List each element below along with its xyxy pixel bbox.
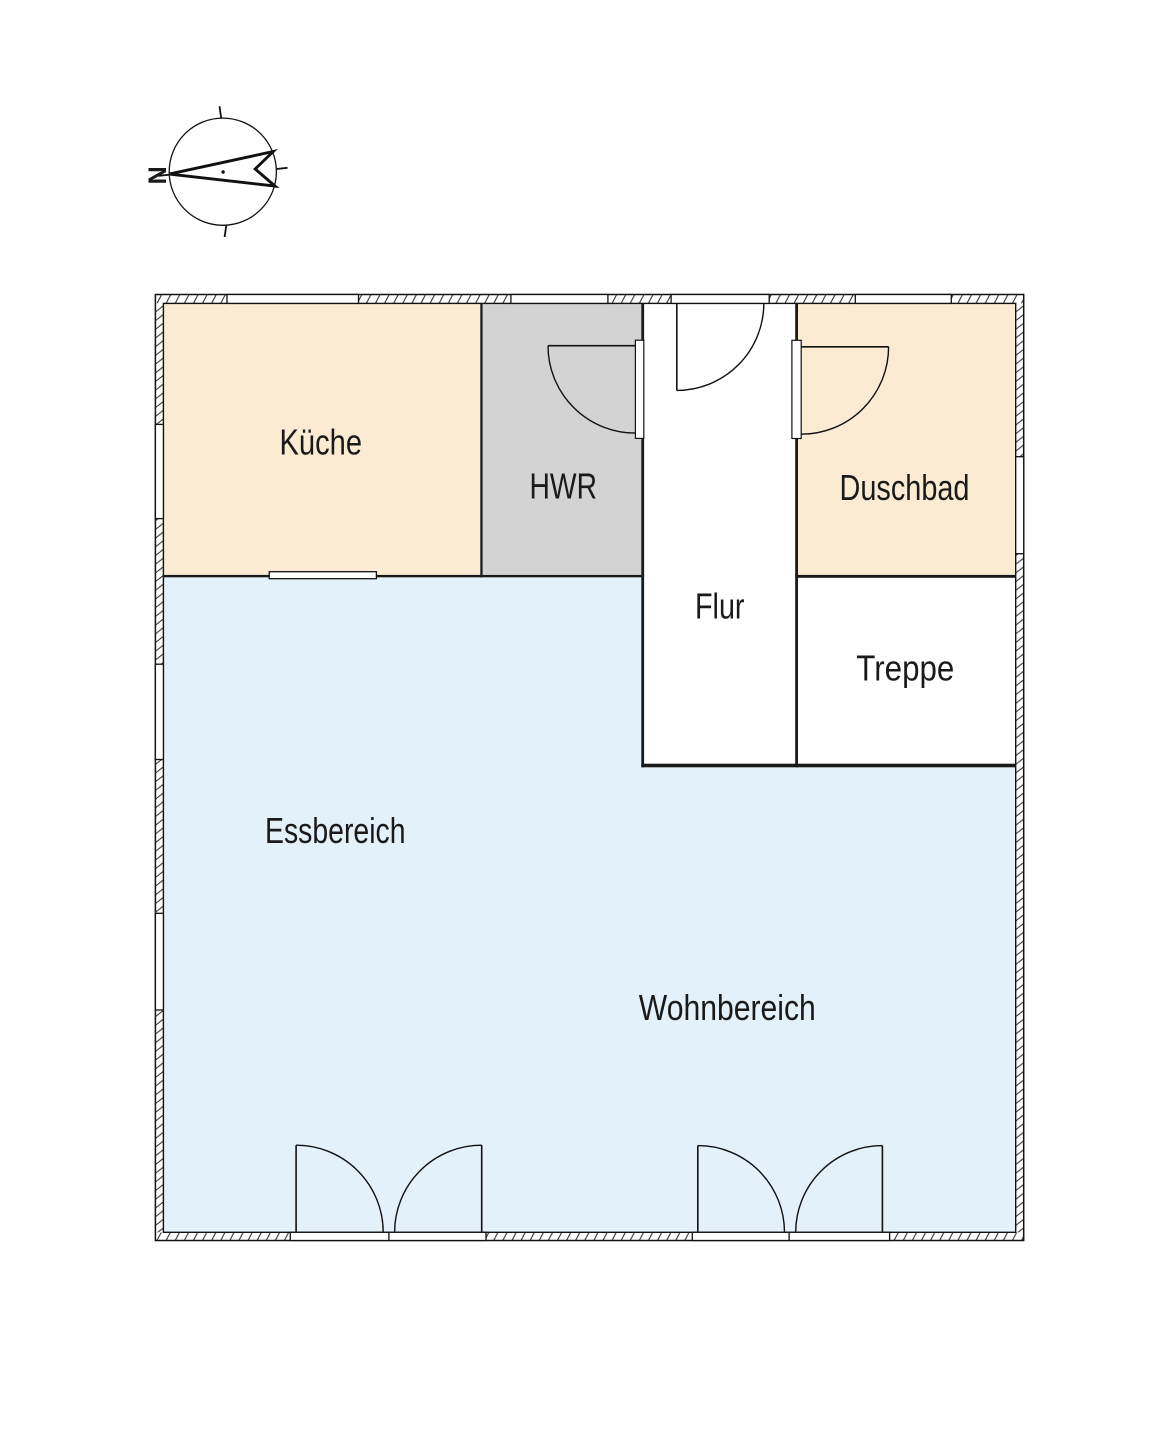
svg-text:Treppe: Treppe (856, 649, 954, 689)
svg-text:Flur: Flur (695, 587, 745, 627)
svg-text:Duschbad: Duschbad (840, 469, 970, 509)
svg-text:Wohnbereich: Wohnbereich (639, 989, 816, 1029)
svg-text:Essbereich: Essbereich (265, 812, 406, 852)
svg-text:Küche: Küche (280, 423, 363, 463)
svg-text:HWR: HWR (530, 467, 598, 507)
svg-text:N: N (142, 166, 170, 184)
